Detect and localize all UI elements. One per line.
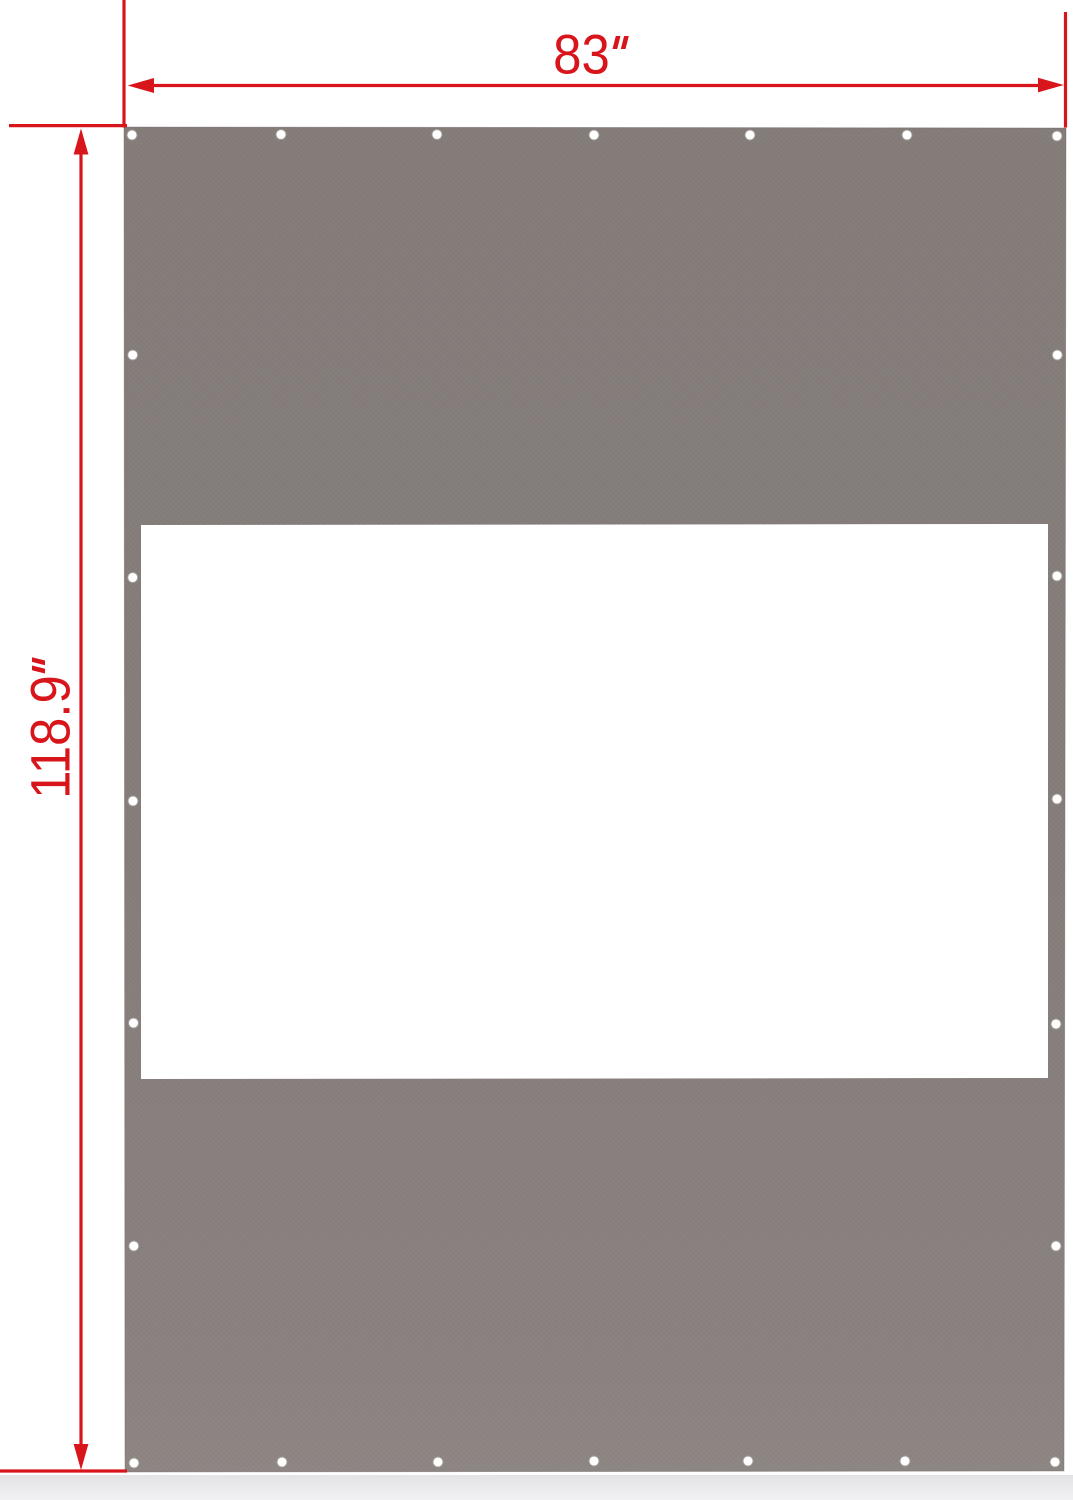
svg-text:118.9: 118.9 <box>20 675 82 799</box>
svg-text:83: 83 <box>553 24 610 86</box>
